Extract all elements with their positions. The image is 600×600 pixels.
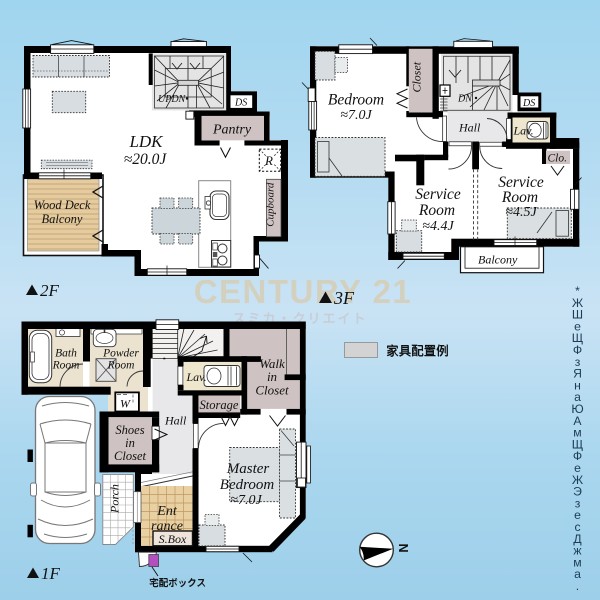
svg-text:Shoes: Shoes [115, 423, 144, 437]
svg-text:≈4.5J: ≈4.5J [505, 205, 537, 220]
svg-text:Pantry: Pantry [212, 123, 252, 138]
svg-text:Room: Room [107, 360, 135, 372]
svg-text:.: . [576, 579, 579, 593]
svg-text:Lav.: Lav. [513, 124, 534, 138]
svg-text:3F: 3F [333, 288, 355, 308]
svg-text:2F: 2F [40, 281, 60, 300]
svg-text:DS: DS [234, 98, 247, 109]
svg-text:LDK: LDK [128, 132, 164, 151]
svg-text:Bedroom: Bedroom [220, 477, 275, 493]
svg-text:Balcony: Balcony [478, 253, 518, 267]
svg-text:Hall: Hall [164, 414, 187, 428]
svg-text:Master: Master [226, 461, 270, 477]
svg-text:CENTURY 21: CENTURY 21 [194, 273, 413, 310]
svg-text:N: N [396, 544, 410, 553]
svg-text:≈4.4J: ≈4.4J [422, 219, 454, 234]
svg-text:Storage: Storage [200, 398, 239, 412]
svg-text:DS: DS [522, 98, 535, 109]
svg-text:Powder: Powder [102, 348, 139, 360]
svg-text:in: in [125, 436, 135, 450]
svg-text:DN: DN [457, 94, 473, 105]
svg-text:Bedroom: Bedroom [328, 92, 384, 109]
svg-text:1F: 1F [41, 564, 61, 583]
svg-text:≈7.0J: ≈7.0J [230, 493, 262, 508]
svg-text:Bath: Bath [55, 348, 77, 360]
svg-text:Closet: Closet [410, 61, 424, 92]
svg-text:Closet: Closet [114, 449, 146, 463]
svg-text:Closet: Closet [255, 383, 289, 398]
svg-text:Room: Room [418, 202, 455, 219]
svg-text:S.Box: S.Box [159, 532, 187, 546]
svg-text:Room: Room [501, 189, 538, 206]
svg-text:Balcony: Balcony [42, 212, 83, 226]
svg-text:Hall: Hall [458, 121, 481, 135]
svg-text:≈7.0J: ≈7.0J [340, 108, 372, 123]
svg-text:Ent: Ent [156, 504, 178, 519]
svg-text:≈20.0J: ≈20.0J [124, 151, 168, 168]
svg-text:Service: Service [415, 186, 461, 203]
svg-text:Wood Deck: Wood Deck [34, 198, 91, 212]
svg-text:家具配置例: 家具配置例 [386, 343, 449, 358]
svg-text:W: W [120, 397, 131, 411]
svg-text:Porch: Porch [108, 484, 122, 514]
svg-text:Clo.: Clo. [548, 153, 568, 165]
svg-text:R: R [264, 153, 273, 168]
svg-text:宅配ボックス: 宅配ボックス [149, 577, 206, 589]
svg-text:Cupboard: Cupboard [265, 182, 277, 227]
svg-text:Lav.: Lav. [186, 370, 207, 384]
svg-text:UPDN: UPDN [158, 94, 187, 105]
